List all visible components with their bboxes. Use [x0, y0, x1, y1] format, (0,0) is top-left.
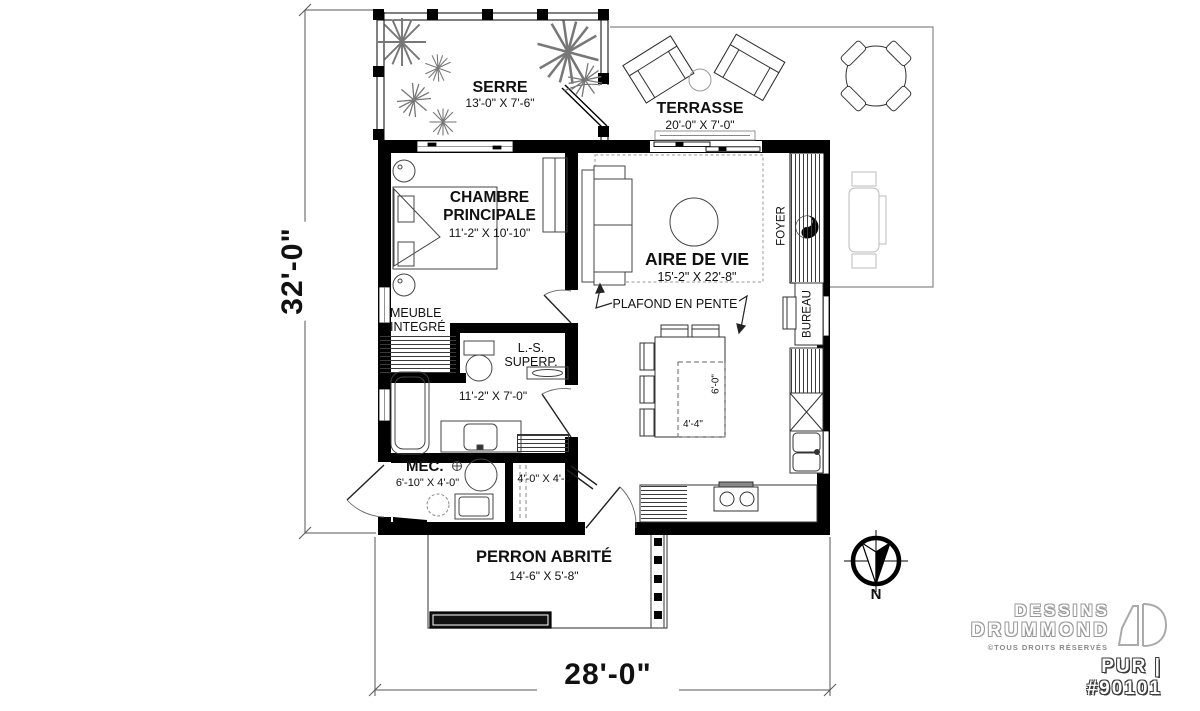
foyer-hatch [791, 154, 823, 282]
logo-d-pencil-icon [1119, 604, 1166, 646]
annotation-table-depth: 6'-0" [710, 374, 722, 394]
room-label-chambre: CHAMBRE PRINCIPALE [432, 189, 547, 225]
annotation-ls-superp: L.-S. SUPERP. [500, 341, 562, 370]
room-dims-perron: 14'-6" X 5'-8" [468, 570, 620, 584]
overall-dimension-width: 28'-0" [537, 658, 679, 693]
annotation-bureau: BUREAU [801, 290, 814, 338]
room-dims-terrasse: 20'-0" X 7'-0" [647, 119, 753, 133]
room-dims-chambre: 11'-2" X 10'-10" [432, 227, 547, 241]
annotation-foyer: FOYER [775, 206, 788, 246]
serre-plants [378, 13, 608, 135]
sliding-patio-door [650, 131, 762, 152]
annotation-plafond-en-pente: PLAFOND EN PENTE [609, 297, 741, 311]
annotation-meuble-integre: MEUBLE INTEGRÉ [390, 306, 454, 335]
brand-name-line1: DESSINS [985, 601, 1110, 621]
room-dims-aire-de-vie: 15'-2" X 22'-8" [638, 270, 756, 284]
room-dims-salle-de-bain: 11'-2" X 7'-0" [448, 390, 538, 404]
plan-model-number: PUR | #90101 [1020, 656, 1162, 700]
room-label-perron: PERRON ABRITÉ [468, 548, 620, 567]
overall-dimension-height: 32'-0" [276, 221, 311, 320]
brand-name-line2: DRUMMOND [965, 620, 1110, 642]
room-dims-serre: 13'-0" X 7'-6" [445, 97, 555, 111]
meuble-integre-hatch [380, 336, 456, 374]
annotation-table-width: 4'-4" [676, 419, 710, 431]
counter-hatch-bottom [641, 486, 687, 521]
room-label-terrasse: TERRASSE [647, 100, 753, 118]
room-label-aire-de-vie: AIRE DE VIE [638, 249, 756, 269]
room-dims-rangement: 4'-0" X 4'-0" [510, 473, 582, 486]
brand-rights: ©TOUS DROITS RÉSERVÉS [965, 644, 1108, 653]
linen-shelf-hatch [517, 434, 569, 452]
room-label-mec: MÉC. [406, 458, 456, 475]
north-label: N [864, 586, 888, 603]
room-label-serre: SERRE [450, 79, 550, 97]
room-dims-mec: 6'-10" X 4'-0" [385, 477, 470, 490]
north-arrow [844, 530, 908, 592]
deck-table [849, 172, 886, 268]
counter-hatch-right [791, 349, 822, 393]
floorplan-page: SERRE 13'-0" X 7'-6" TERRASSE 20'-0" X 7… [0, 0, 1200, 711]
